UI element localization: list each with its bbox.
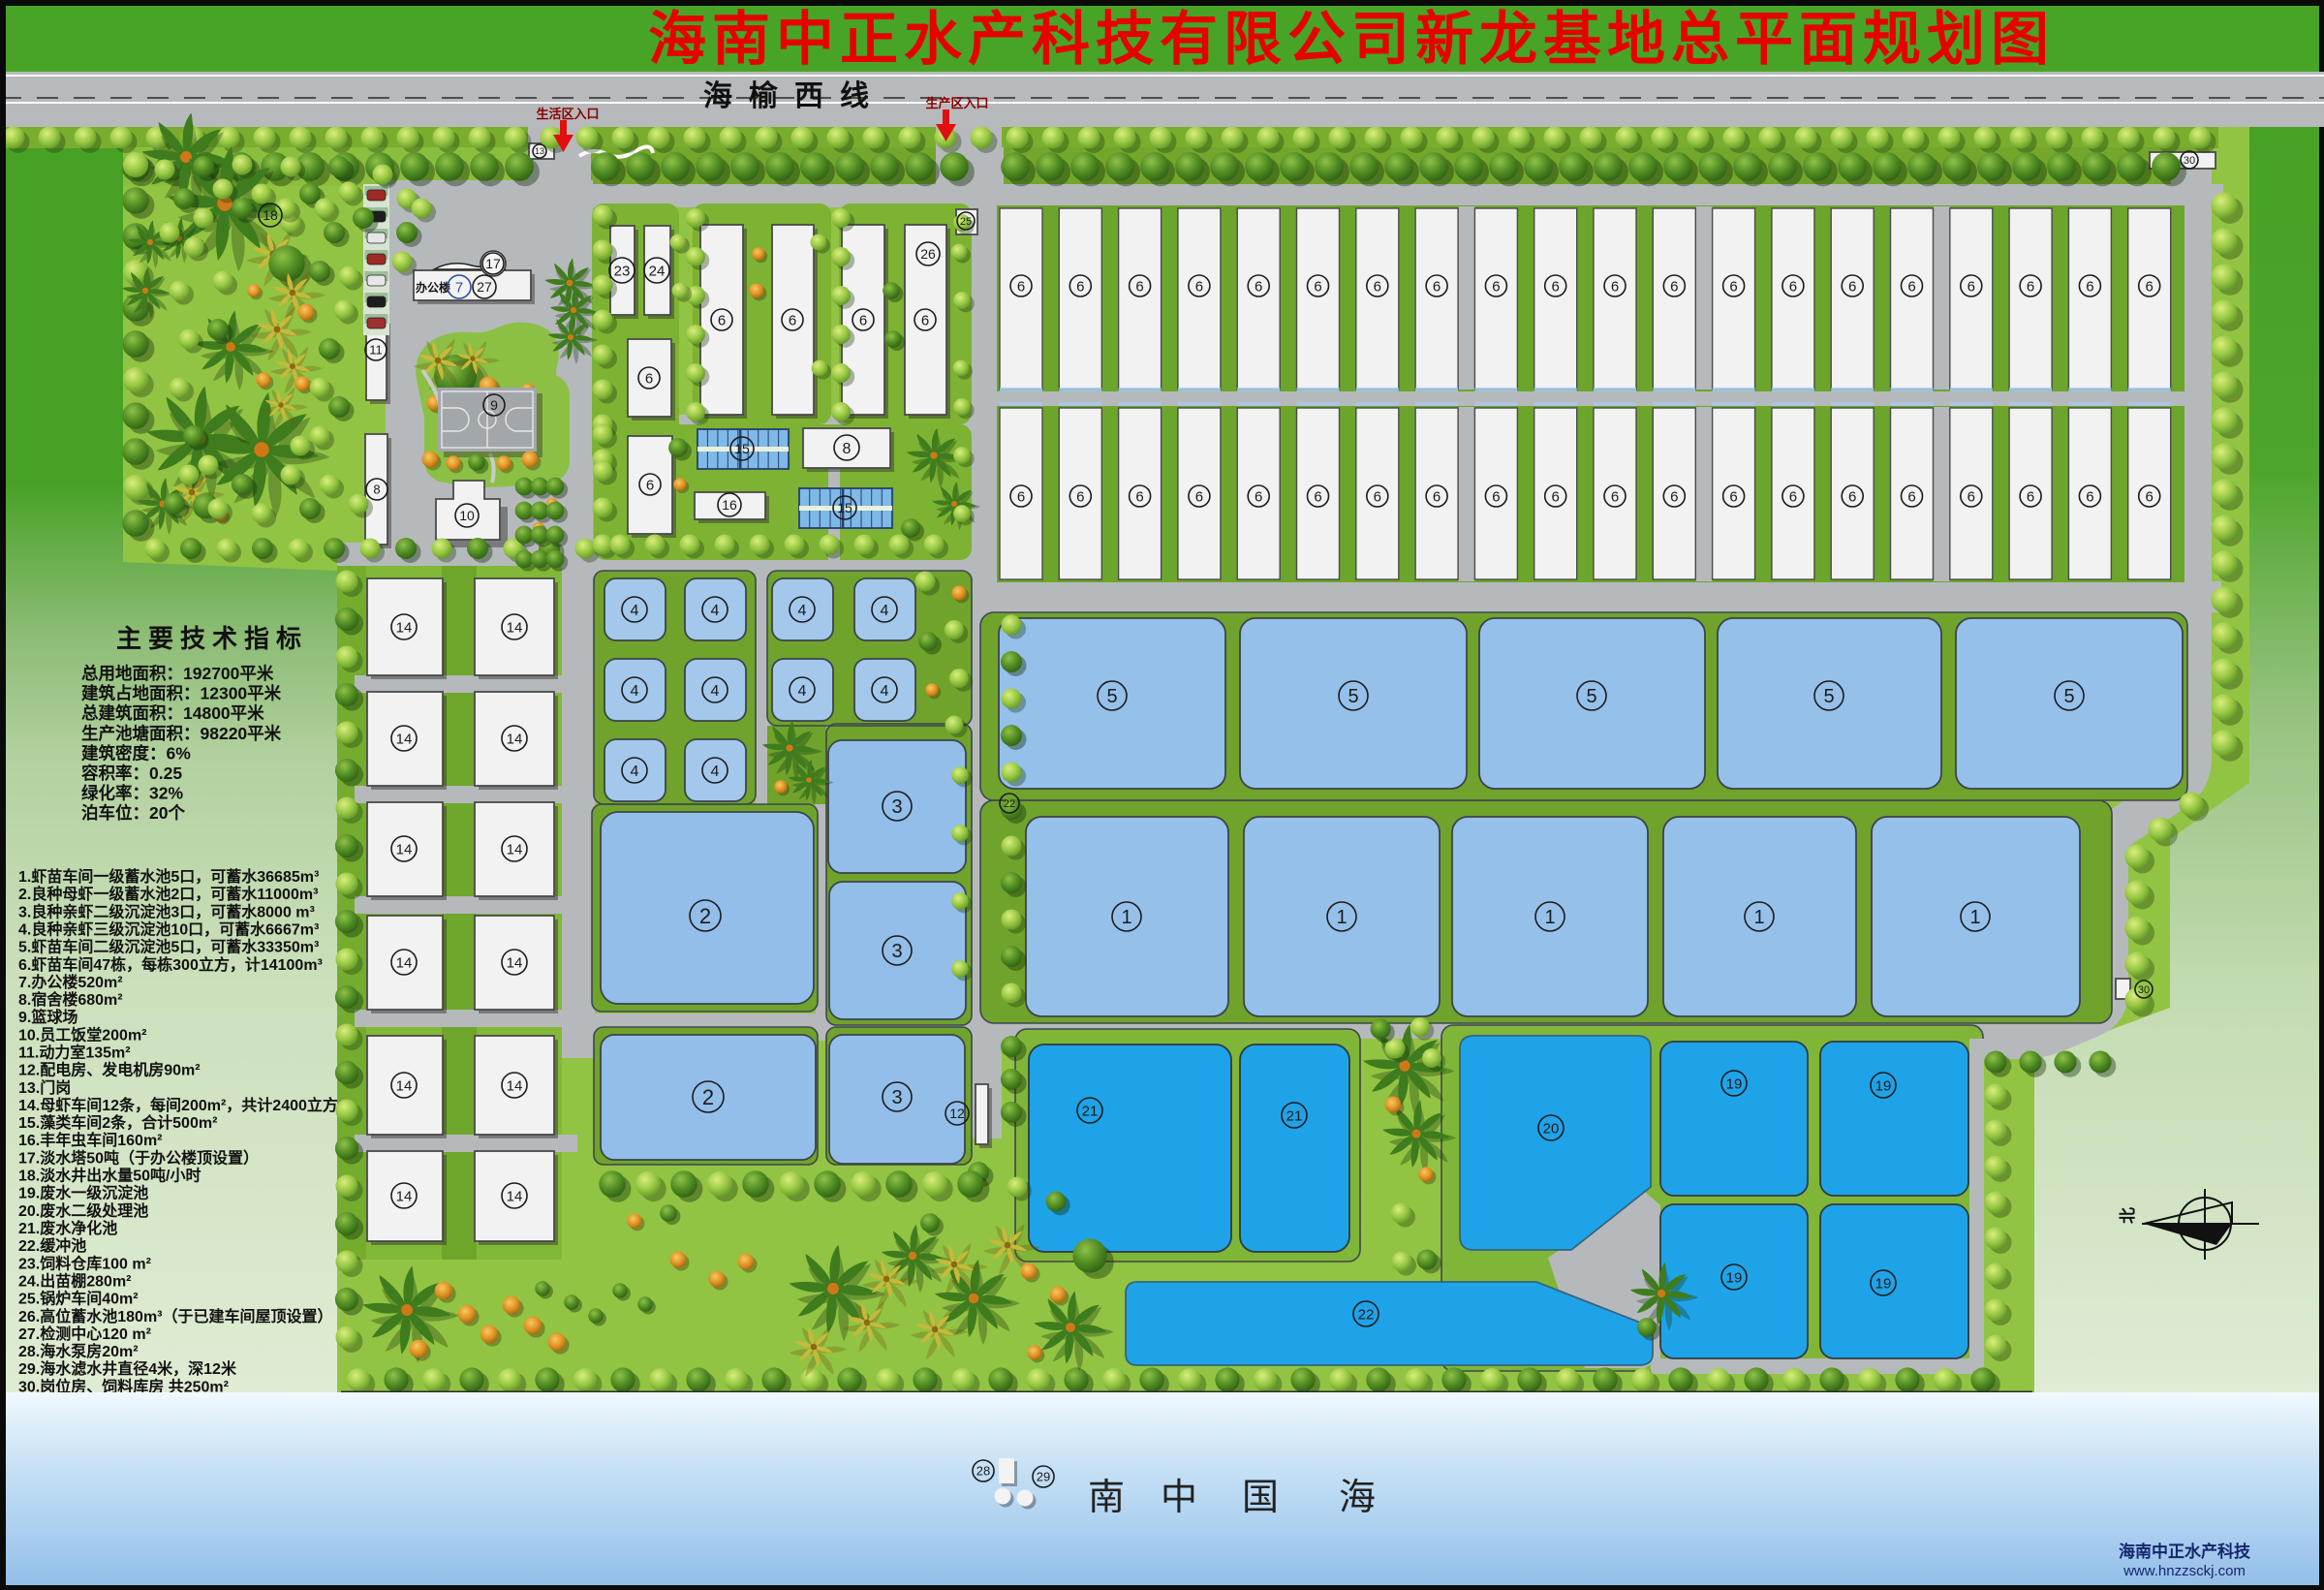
svg-text:16: 16 xyxy=(722,497,737,513)
svg-text:6: 6 xyxy=(1729,278,1737,295)
svg-text:北: 北 xyxy=(2119,1207,2137,1224)
svg-text:6: 6 xyxy=(1255,488,1262,505)
svg-text:26: 26 xyxy=(920,246,936,262)
svg-text:22: 22 xyxy=(1004,798,1015,810)
svg-text:22.缓冲池: 22.缓冲池 xyxy=(18,1236,86,1255)
svg-text:8: 8 xyxy=(843,441,852,457)
svg-text:5: 5 xyxy=(1106,686,1117,707)
svg-text:14: 14 xyxy=(396,954,413,971)
svg-text:主要技术指标: 主要技术指标 xyxy=(116,624,308,653)
svg-text:6: 6 xyxy=(1968,278,1975,295)
svg-text:中: 中 xyxy=(1161,1478,1197,1518)
svg-text:8.宿舍楼680m²: 8.宿舍楼680m² xyxy=(18,990,123,1009)
svg-text:10: 10 xyxy=(459,508,475,523)
svg-text:1: 1 xyxy=(1544,907,1555,928)
svg-text:18: 18 xyxy=(263,207,278,223)
svg-text:19.废水一级沉淀池: 19.废水一级沉淀池 xyxy=(18,1184,148,1202)
svg-text:19: 19 xyxy=(1726,1076,1743,1092)
svg-text:12: 12 xyxy=(949,1106,965,1121)
svg-text:13.门岗: 13.门岗 xyxy=(18,1078,71,1097)
svg-text:6: 6 xyxy=(921,312,929,328)
svg-text:6: 6 xyxy=(2146,488,2154,505)
svg-text:1: 1 xyxy=(1336,907,1347,928)
svg-text:容积率：0.25: 容积率：0.25 xyxy=(81,764,182,783)
svg-text:海南中正水产科技: 海南中正水产科技 xyxy=(2119,1542,2251,1561)
svg-text:4: 4 xyxy=(631,764,639,780)
svg-text:3: 3 xyxy=(891,1087,902,1108)
svg-text:6: 6 xyxy=(1314,488,1321,505)
svg-text:19: 19 xyxy=(1875,1275,1892,1292)
svg-text:国: 国 xyxy=(1242,1478,1279,1518)
svg-text:线: 线 xyxy=(840,80,869,112)
svg-text:6: 6 xyxy=(1195,488,1203,505)
svg-text:南: 南 xyxy=(1088,1478,1125,1518)
svg-text:6: 6 xyxy=(2146,278,2154,295)
svg-text:4.良种亲虾三级沉淀池10口，可蓄水6667m³: 4.良种亲虾三级沉淀池10口，可蓄水6667m³ xyxy=(18,920,319,939)
svg-text:27.检测中心120 m²: 27.检测中心120 m² xyxy=(18,1325,151,1343)
svg-text:4: 4 xyxy=(711,603,720,619)
svg-text:14: 14 xyxy=(507,619,523,636)
svg-text:20: 20 xyxy=(1543,1120,1560,1137)
svg-text:11: 11 xyxy=(369,343,383,358)
svg-text:6: 6 xyxy=(1017,488,1025,505)
svg-text:15: 15 xyxy=(734,441,750,456)
svg-text:6: 6 xyxy=(1670,278,1678,295)
svg-text:6: 6 xyxy=(1729,488,1737,505)
svg-text:21: 21 xyxy=(1286,1107,1303,1124)
svg-text:总建筑面积：14800平米: 总建筑面积：14800平米 xyxy=(81,703,264,723)
svg-text:生产区入口: 生产区入口 xyxy=(925,96,988,110)
svg-text:6: 6 xyxy=(1670,488,1678,505)
svg-text:28.海水泵房20m²: 28.海水泵房20m² xyxy=(18,1342,139,1360)
svg-text:14: 14 xyxy=(507,731,523,747)
svg-text:6: 6 xyxy=(1611,278,1619,295)
svg-text:6: 6 xyxy=(1255,278,1262,295)
svg-text:4: 4 xyxy=(798,603,807,619)
svg-text:6: 6 xyxy=(1848,278,1856,295)
svg-text:1: 1 xyxy=(1969,907,1980,928)
svg-text:10.员工饭堂200m²: 10.员工饭堂200m² xyxy=(18,1025,147,1044)
svg-text:16.丰年虫车间160m²: 16.丰年虫车间160m² xyxy=(18,1131,163,1149)
svg-text:4: 4 xyxy=(711,764,720,780)
svg-text:6: 6 xyxy=(1433,488,1441,505)
svg-text:西: 西 xyxy=(794,80,823,112)
svg-text:6: 6 xyxy=(2027,488,2034,505)
svg-text:29.海水滤水井直径4米，深12米: 29.海水滤水井直径4米，深12米 xyxy=(18,1359,237,1378)
svg-text:6: 6 xyxy=(1195,278,1203,295)
svg-text:4: 4 xyxy=(711,683,720,700)
svg-text:7: 7 xyxy=(455,279,463,296)
svg-text:2: 2 xyxy=(699,904,711,928)
svg-text:6: 6 xyxy=(1552,488,1560,505)
svg-text:7.办公楼520m²: 7.办公楼520m² xyxy=(18,973,123,991)
svg-text:22: 22 xyxy=(1358,1306,1375,1323)
svg-text:6: 6 xyxy=(1552,278,1560,295)
svg-text:21.废水净化池: 21.废水净化池 xyxy=(18,1219,117,1237)
svg-text:6: 6 xyxy=(718,312,726,328)
svg-text:14: 14 xyxy=(507,1188,523,1204)
svg-text:1: 1 xyxy=(1753,907,1764,928)
svg-text:14: 14 xyxy=(396,731,413,747)
svg-text:6: 6 xyxy=(645,370,653,387)
svg-text:25: 25 xyxy=(960,216,972,228)
svg-text:15: 15 xyxy=(837,500,852,515)
svg-text:3.良种亲虾二级沉淀池3口，可蓄水8000 m³: 3.良种亲虾二级沉淀池3口，可蓄水8000 m³ xyxy=(18,902,315,920)
svg-text:生活区入口: 生活区入口 xyxy=(536,107,599,121)
svg-text:14: 14 xyxy=(507,954,523,971)
svg-text:6: 6 xyxy=(1611,488,1619,505)
svg-text:18.淡水井出水量50吨/小时: 18.淡水井出水量50吨/小时 xyxy=(18,1167,201,1185)
svg-text:4: 4 xyxy=(798,683,807,700)
svg-text:6: 6 xyxy=(1135,488,1143,505)
svg-text:办公楼: 办公楼 xyxy=(416,280,450,295)
svg-text:5: 5 xyxy=(1586,686,1596,707)
svg-text:6: 6 xyxy=(1789,488,1797,505)
svg-text:4: 4 xyxy=(631,683,639,700)
svg-text:8: 8 xyxy=(373,483,380,497)
svg-text:30: 30 xyxy=(2184,155,2195,167)
svg-text:泊车位：20个: 泊车位：20个 xyxy=(81,803,185,823)
svg-text:6: 6 xyxy=(2086,278,2093,295)
svg-text:29: 29 xyxy=(1037,1470,1050,1484)
svg-text:海: 海 xyxy=(703,80,732,112)
svg-text:13: 13 xyxy=(535,146,544,156)
svg-text:17.淡水塔50吨（于办公楼顶设置）: 17.淡水塔50吨（于办公楼顶设置） xyxy=(18,1148,259,1167)
svg-text:14: 14 xyxy=(507,1077,523,1094)
svg-text:24: 24 xyxy=(649,263,666,279)
svg-text:14: 14 xyxy=(396,841,413,857)
svg-text:6: 6 xyxy=(1848,488,1856,505)
svg-text:6: 6 xyxy=(859,312,867,328)
svg-text:6.虾苗车间47栋，每栋300立方，计14100m³: 6.虾苗车间47栋，每栋300立方，计14100m³ xyxy=(18,955,323,974)
svg-text:30: 30 xyxy=(2138,984,2150,996)
svg-text:6: 6 xyxy=(1907,488,1915,505)
svg-text:5: 5 xyxy=(1348,686,1358,707)
svg-text:9: 9 xyxy=(490,397,498,413)
svg-text:5.虾苗车间二级沉淀池5口，可蓄水33350m³: 5.虾苗车间二级沉淀池5口，可蓄水33350m³ xyxy=(18,938,319,956)
svg-text:6: 6 xyxy=(1907,278,1915,295)
svg-text:6: 6 xyxy=(1314,278,1321,295)
svg-text:2: 2 xyxy=(702,1085,714,1109)
svg-text:24.出苗棚280m²: 24.出苗棚280m² xyxy=(18,1272,132,1291)
svg-text:17: 17 xyxy=(485,256,501,271)
svg-text:5: 5 xyxy=(2063,686,2074,707)
svg-text:6: 6 xyxy=(1135,278,1143,295)
svg-text:www.hnzzsckj.com: www.hnzzsckj.com xyxy=(2123,1563,2246,1579)
svg-text:4: 4 xyxy=(881,603,889,619)
svg-text:建筑占地面积：12300平米: 建筑占地面积：12300平米 xyxy=(81,684,282,703)
svg-text:6: 6 xyxy=(1968,488,1975,505)
svg-text:6: 6 xyxy=(1433,278,1441,295)
svg-text:14: 14 xyxy=(396,619,413,636)
svg-text:28: 28 xyxy=(976,1464,990,1479)
svg-text:23.饲料仓库100 m²: 23.饲料仓库100 m² xyxy=(18,1254,151,1272)
svg-text:建筑密度：6%: 建筑密度：6% xyxy=(81,743,191,763)
svg-text:海: 海 xyxy=(1339,1478,1376,1518)
svg-text:3: 3 xyxy=(891,941,902,962)
svg-text:6: 6 xyxy=(2027,278,2034,295)
svg-text:6: 6 xyxy=(2086,488,2093,505)
svg-text:海南中正水产科技有限公司新龙基地总平面规划图: 海南中正水产科技有限公司新龙基地总平面规划图 xyxy=(648,7,2055,72)
svg-text:11.动力室135m²: 11.动力室135m² xyxy=(18,1044,131,1062)
svg-text:12.配电房、发电机房90m²: 12.配电房、发电机房90m² xyxy=(18,1061,201,1079)
svg-text:15.藻类车间2条，合计500m²: 15.藻类车间2条，合计500m² xyxy=(18,1113,217,1132)
svg-text:14: 14 xyxy=(396,1188,413,1204)
svg-text:26.高位蓄水池180m³（于已建车间屋顶设置）: 26.高位蓄水池180m³（于已建车间屋顶设置） xyxy=(18,1307,333,1325)
svg-text:4: 4 xyxy=(881,683,889,700)
svg-text:14: 14 xyxy=(507,841,523,857)
svg-text:19: 19 xyxy=(1875,1077,1892,1094)
svg-text:6: 6 xyxy=(789,312,796,328)
svg-text:3: 3 xyxy=(891,796,902,818)
svg-text:9.篮球场: 9.篮球场 xyxy=(18,1008,77,1026)
svg-text:绿化率：32%: 绿化率：32% xyxy=(81,784,183,803)
svg-text:6: 6 xyxy=(1076,278,1084,295)
svg-text:27: 27 xyxy=(477,279,492,295)
svg-text:2.良种母虾一级蓄水池2口，可蓄水11000m³: 2.良种母虾一级蓄水池2口，可蓄水11000m³ xyxy=(18,885,318,903)
svg-text:6: 6 xyxy=(1789,278,1797,295)
svg-text:总用地面积：192700平米: 总用地面积：192700平米 xyxy=(81,664,274,683)
svg-text:5: 5 xyxy=(1823,686,1834,707)
svg-text:6: 6 xyxy=(646,477,654,493)
svg-text:20.废水二级处理池: 20.废水二级处理池 xyxy=(18,1201,148,1220)
svg-text:6: 6 xyxy=(1492,488,1500,505)
svg-text:生产池塘面积：98220平米: 生产池塘面积：98220平米 xyxy=(81,724,282,743)
svg-text:19: 19 xyxy=(1726,1269,1743,1286)
svg-text:6: 6 xyxy=(1374,488,1381,505)
svg-text:23: 23 xyxy=(614,263,631,279)
svg-text:6: 6 xyxy=(1076,488,1084,505)
svg-text:6: 6 xyxy=(1017,278,1025,295)
svg-text:14.母虾车间12条，每间200m²，共计2400立方: 14.母虾车间12条，每间200m²，共计2400立方 xyxy=(18,1096,338,1114)
svg-text:14: 14 xyxy=(396,1077,413,1094)
svg-text:6: 6 xyxy=(1492,278,1500,295)
svg-text:21: 21 xyxy=(1082,1103,1099,1119)
svg-text:1.虾苗车间一级蓄水池5口，可蓄水36685m³: 1.虾苗车间一级蓄水池5口，可蓄水36685m³ xyxy=(18,867,319,886)
svg-text:6: 6 xyxy=(1374,278,1381,295)
svg-text:1: 1 xyxy=(1121,907,1131,928)
svg-text:4: 4 xyxy=(631,603,639,619)
svg-text:榆: 榆 xyxy=(749,80,779,112)
svg-text:25.锅炉车间40m²: 25.锅炉车间40m² xyxy=(18,1290,139,1308)
